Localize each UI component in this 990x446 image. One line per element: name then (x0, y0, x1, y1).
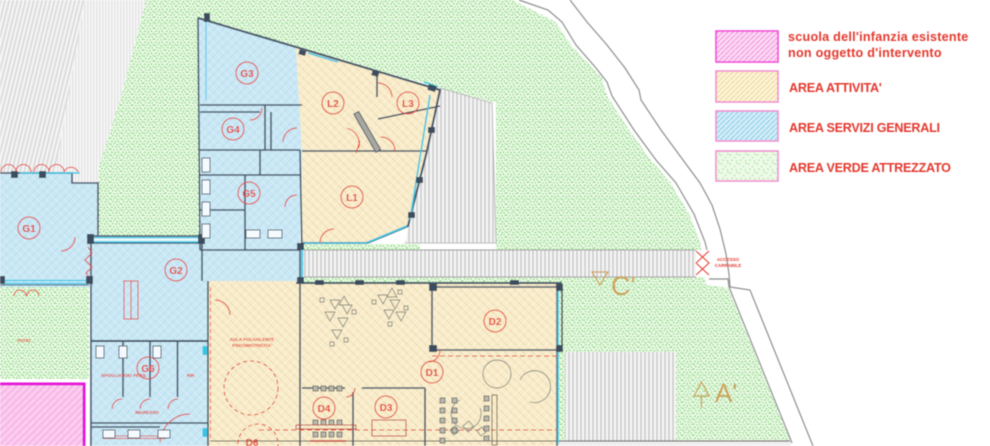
svg-text:non oggetto d'intervento: non oggetto d'intervento (788, 46, 942, 60)
svg-text:A': A' (715, 378, 737, 408)
svg-text:AREA VERDE ATTREZZATO: AREA VERDE ATTREZZATO (789, 161, 951, 175)
svg-text:PATIO: PATIO (17, 338, 31, 343)
svg-text:scuola dell'infanzia esistente: scuola dell'infanzia esistente (788, 30, 969, 44)
svg-text:G4: G4 (226, 125, 240, 136)
svg-text:CARRABILE: CARRABILE (715, 263, 742, 268)
svg-text:L3: L3 (402, 99, 414, 110)
svg-text:PSICOMOTRICITA': PSICOMOTRICITA' (232, 343, 272, 348)
svg-text:AREA SERVIZI GENERALI: AREA SERVIZI GENERALI (789, 121, 940, 135)
svg-text:INGRESSO: INGRESSO (135, 410, 159, 415)
svg-text:ACCESSO: ACCESSO (717, 257, 740, 262)
svg-text:SPOGLIATOIO PERS.: SPOGLIATOIO PERS. (101, 373, 147, 378)
svg-text:D3: D3 (380, 403, 393, 414)
svg-text:D2: D2 (489, 317, 502, 328)
svg-text:G5: G5 (242, 189, 256, 200)
svg-text:C': C' (611, 271, 636, 301)
svg-text:G1: G1 (22, 224, 36, 235)
svg-text:D6: D6 (246, 438, 259, 446)
svg-text:D4: D4 (318, 404, 331, 415)
svg-text:L2: L2 (327, 99, 339, 110)
svg-text:RIP.: RIP. (187, 373, 195, 378)
svg-text:AULA POLIVALENTE: AULA POLIVALENTE (230, 337, 275, 342)
svg-text:D1: D1 (426, 368, 439, 379)
svg-text:L1: L1 (346, 193, 358, 204)
svg-text:AREA ATTIVITA': AREA ATTIVITA' (789, 81, 882, 95)
svg-text:G2: G2 (169, 266, 183, 277)
svg-text:G3: G3 (240, 69, 254, 80)
